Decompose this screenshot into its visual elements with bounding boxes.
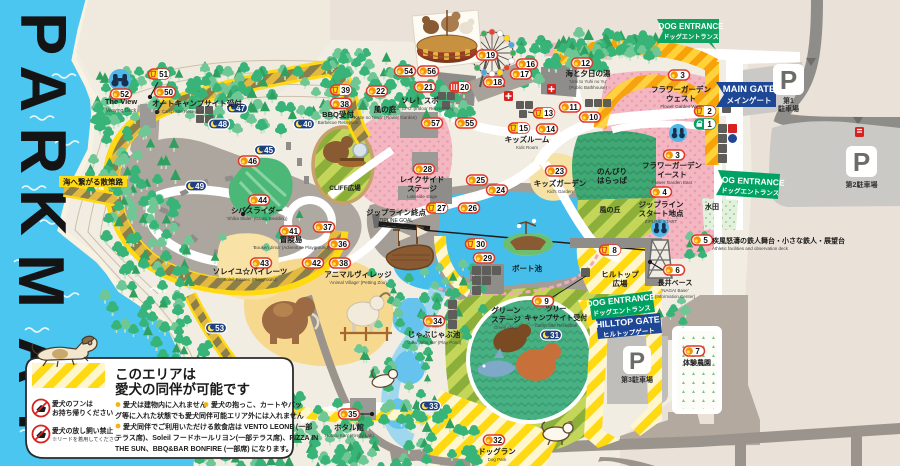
svg-text:ボート池: ボート池 (512, 263, 542, 273)
svg-text:BBQ受付: BBQ受付 (322, 109, 354, 119)
svg-text:Kid's Garden: Kid's Garden (547, 189, 573, 194)
svg-text:第1: 第1 (783, 96, 794, 105)
svg-text:'Soleil Pirates' (Playground): 'Soleil Pirates' (Playground) (223, 277, 278, 282)
svg-text:9: 9 (544, 297, 549, 306)
svg-text:長井ベース: 長井ベース (658, 278, 693, 287)
svg-text:54: 54 (404, 67, 413, 76)
svg-text:56: 56 (427, 67, 436, 76)
svg-text:26: 26 (468, 204, 477, 213)
svg-text:体験農園: 体験農園 (683, 358, 711, 367)
svg-text:ウェスト: ウェスト (666, 94, 696, 103)
svg-text:グリーン: グリーン (491, 305, 521, 315)
svg-text:ホタル館: ホタル館 (334, 422, 364, 432)
svg-text:24: 24 (496, 186, 505, 195)
svg-text:フラワーガーデン: フラワーガーデン (651, 84, 711, 94)
svg-text:オートキャンプサイト受付: オートキャンプサイト受付 (152, 98, 242, 108)
svg-text:18: 18 (493, 78, 502, 87)
svg-text:P: P (780, 65, 797, 95)
svg-text:P: P (853, 147, 870, 177)
svg-text:38: 38 (339, 259, 348, 268)
svg-text:海へ繋がる散策路: 海へ繋がる散策路 (63, 177, 123, 187)
svg-text:ZIPLINE GOAL: ZIPLINE GOAL (379, 218, 413, 224)
svg-text:28: 28 (423, 165, 432, 174)
svg-text:34: 34 (433, 317, 442, 326)
svg-text:第3駐車場: 第3駐車場 (621, 375, 653, 384)
svg-text:19: 19 (486, 51, 495, 60)
svg-text:ステージ: ステージ (407, 184, 437, 193)
svg-text:アニマルヴィレッジ: アニマルヴィレッジ (324, 269, 392, 279)
svg-text:11: 11 (569, 103, 578, 112)
svg-text:29: 29 (483, 254, 492, 263)
svg-text:キャンプサイト受付: キャンプサイト受付 (525, 313, 588, 322)
svg-text:45: 45 (264, 146, 273, 155)
svg-text:愛犬の放し飼い禁止: 愛犬の放し飼い禁止 (52, 426, 113, 435)
svg-text:'NAGAI Base': 'NAGAI Base' (661, 288, 688, 293)
svg-text:水田: 水田 (705, 202, 719, 211)
svg-text:メインゲート: メインゲート (727, 95, 772, 105)
svg-text:'Animal Village' (Petting Zoo): 'Animal Village' (Petting Zoo) (329, 280, 387, 285)
svg-text:46: 46 (248, 157, 257, 166)
svg-text:Camp Site Reception: Camp Site Reception (535, 323, 578, 328)
svg-text:31: 31 (550, 331, 559, 340)
svg-text:Green stage: Green stage (494, 325, 519, 330)
svg-text:このエリアは: このエリアは (115, 367, 196, 382)
svg-text:風の丘: 風の丘 (599, 205, 621, 214)
svg-text:Air Camp Site Reception: Air Camp Site Reception (155, 109, 205, 114)
svg-text:10: 10 (589, 113, 598, 122)
svg-text:キッズガーデン: キッズガーデン (534, 178, 587, 188)
svg-text:17: 17 (520, 70, 529, 79)
svg-text:ソレイユ☆パイレーツ: ソレイユ☆パイレーツ (213, 266, 288, 276)
svg-text:Kids Room: Kids Room (516, 145, 538, 150)
svg-text:Flower Garden East: Flower Garden East (652, 180, 693, 185)
svg-text:レイクサイド: レイクサイド (400, 174, 445, 184)
svg-text:疾風怒濤の鉄人舞台・小さな鉄人・展望台: 疾風怒濤の鉄人舞台・小さな鉄人・展望台 (712, 236, 845, 245)
svg-text:'Shiba Slider' (Grass Sledding: 'Shiba Slider' (Grass Sledding) (227, 216, 288, 221)
svg-text:THE SUN、BBQ&BAR BONFIRE (一部席): THE SUN、BBQ&BAR BONFIRE (一部席) になります。 (115, 444, 293, 453)
svg-text:愛犬のフンは: 愛犬のフンは (52, 399, 93, 408)
svg-text:フラワーガーデン: フラワーガーデン (642, 160, 702, 170)
svg-text:MAIN GATE: MAIN GATE (723, 84, 776, 95)
svg-text:35: 35 (348, 410, 357, 419)
svg-text:愛犬は建物内に入れません: 愛犬は建物内に入れません (123, 400, 207, 409)
svg-text:(Public Bathhouse): (Public Bathhouse) (569, 85, 608, 90)
svg-text:23: 23 (555, 167, 564, 176)
svg-text:39: 39 (341, 86, 350, 95)
svg-text:愛犬の同伴が可能です: 愛犬の同伴が可能です (115, 381, 250, 397)
svg-text:33: 33 (429, 402, 438, 411)
svg-text:ツリー: ツリー (546, 305, 567, 313)
svg-text:愛犬同伴でご利用いただける飲食店は VENTO LEONE: 愛犬同伴でご利用いただける飲食店は VENTO LEONE (一部 (123, 422, 312, 431)
svg-text:37: 37 (323, 223, 332, 232)
svg-text:'Hotaru Kan' (Firefly Lab): 'Hotaru Kan' (Firefly Lab) (324, 433, 374, 438)
svg-text:キッズルーム: キッズルーム (505, 134, 550, 144)
svg-text:32: 32 (493, 436, 502, 445)
svg-text:愛犬の抱っこ、カートやバッ: 愛犬の抱っこ、カートやバッ (211, 400, 302, 409)
svg-text:55: 55 (465, 119, 474, 128)
svg-text:3: 3 (680, 71, 685, 80)
svg-text:'Bouken Jima' (Adventure Playg: 'Bouken Jima' (Adventure Playground) (253, 245, 330, 250)
svg-text:DOG ENTRANCE: DOG ENTRANCE (659, 22, 725, 31)
svg-text:53: 53 (215, 324, 224, 333)
svg-text:57: 57 (431, 119, 440, 128)
svg-text:49: 49 (195, 182, 204, 191)
svg-text:'SOLE! SPO' (Indoor Recreation: 'SOLE! SPO' (Indoor Recreation ) (387, 106, 454, 111)
svg-text:36: 36 (338, 240, 347, 249)
svg-text:第2駐車場: 第2駐車場 (846, 180, 878, 189)
svg-text:2: 2 (707, 107, 712, 116)
svg-text:テラス席)、Soleil フードホールリヨン(一部テラス席): テラス席)、Soleil フードホールリヨン(一部テラス席)、PIZZA IN (115, 433, 318, 442)
svg-text:Flower Garden West: Flower Garden West (660, 104, 702, 109)
svg-text:20: 20 (460, 83, 469, 92)
svg-text:'Jabu Jabu Ike' (Play Pond): 'Jabu Jabu Ike' (Play Pond) (407, 340, 462, 345)
svg-text:CLIFF広場: CLIFF広場 (329, 183, 361, 192)
svg-text:グ等に入れた状態でも愛犬同伴可能エリア外には入れません: グ等に入れた状態でも愛犬同伴可能エリア外には入れません (115, 411, 304, 420)
svg-text:※リードを着用してください: ※リードを着用してください (52, 435, 119, 443)
svg-text:25: 25 (476, 176, 485, 185)
svg-text:22: 22 (376, 87, 385, 96)
svg-text:6: 6 (675, 266, 680, 275)
svg-text:12: 12 (581, 59, 590, 68)
svg-text:50: 50 (164, 88, 173, 97)
svg-text:44: 44 (258, 196, 267, 205)
svg-text:海と夕日の湯: 海と夕日の湯 (566, 68, 611, 78)
svg-text:7: 7 (695, 347, 700, 356)
svg-text:じゃぶじゃぶ池: じゃぶじゃぶ池 (408, 329, 461, 339)
svg-text:'Kaze no Niwa' (Flower Garden): 'Kaze no Niwa' (Flower Garden) (353, 115, 417, 120)
svg-text:ステージ: ステージ (491, 315, 521, 324)
svg-text:Lakeside stage: Lakeside stage (407, 194, 438, 199)
svg-text:The View: The View (105, 97, 138, 106)
svg-text:15: 15 (519, 124, 528, 133)
svg-text:イースト: イースト (657, 170, 687, 179)
svg-text:Dog Park: Dog Park (488, 457, 508, 462)
svg-text:38: 38 (340, 100, 349, 109)
svg-text:広場: 広場 (613, 278, 628, 288)
svg-text:ジップライン終点: ジップライン終点 (366, 207, 426, 217)
svg-text:シバスライダー: シバスライダー (231, 205, 283, 215)
svg-text:8: 8 (612, 246, 617, 255)
svg-text:はらっぱ: はらっぱ (597, 175, 627, 185)
svg-text:駐車場: 駐車場 (778, 104, 799, 113)
svg-text:27: 27 (437, 204, 446, 213)
svg-text:Viewing Deck: Viewing Deck (106, 108, 137, 114)
svg-text:1: 1 (707, 120, 712, 129)
svg-text:21: 21 (424, 83, 433, 92)
svg-text:51: 51 (159, 70, 168, 79)
svg-text:30: 30 (476, 240, 485, 249)
svg-text:ジップライン: ジップライン (639, 199, 684, 209)
svg-text:40: 40 (303, 120, 312, 129)
svg-text:48: 48 (218, 120, 227, 129)
svg-text:Athletic facilities and observ: Athletic facilities and observation deck (712, 246, 789, 251)
svg-text:3: 3 (675, 151, 680, 160)
svg-text:5: 5 (703, 236, 708, 245)
svg-text:(Information Center): (Information Center) (655, 294, 696, 299)
svg-text:のんびり: のんびり (597, 166, 627, 176)
svg-text:4: 4 (662, 188, 667, 197)
svg-text:ヒルトップ: ヒルトップ (601, 269, 639, 279)
svg-text:13: 13 (544, 109, 553, 118)
svg-text:P: P (629, 348, 645, 375)
svg-text:16: 16 (526, 60, 535, 69)
svg-text:Barbecue Reception: Barbecue Reception (318, 120, 359, 125)
svg-text:'Umi to Yuhi no Yu': 'Umi to Yuhi no Yu' (569, 79, 606, 84)
svg-text:冒険島: 冒険島 (280, 234, 303, 244)
svg-text:42: 42 (312, 259, 321, 268)
svg-text:14: 14 (546, 125, 555, 134)
svg-text:お持ち帰りください: お持ち帰りください (52, 408, 113, 417)
svg-text:ソレ！スポ: ソレ！スポ (401, 95, 439, 105)
svg-text:スタート地点: スタート地点 (639, 208, 684, 218)
svg-text:ドッグエントランス: ドッグエントランス (663, 33, 719, 41)
svg-text:ドッグラン: ドッグラン (478, 446, 516, 456)
svg-text:ZIPLINE START: ZIPLINE START (645, 219, 678, 224)
